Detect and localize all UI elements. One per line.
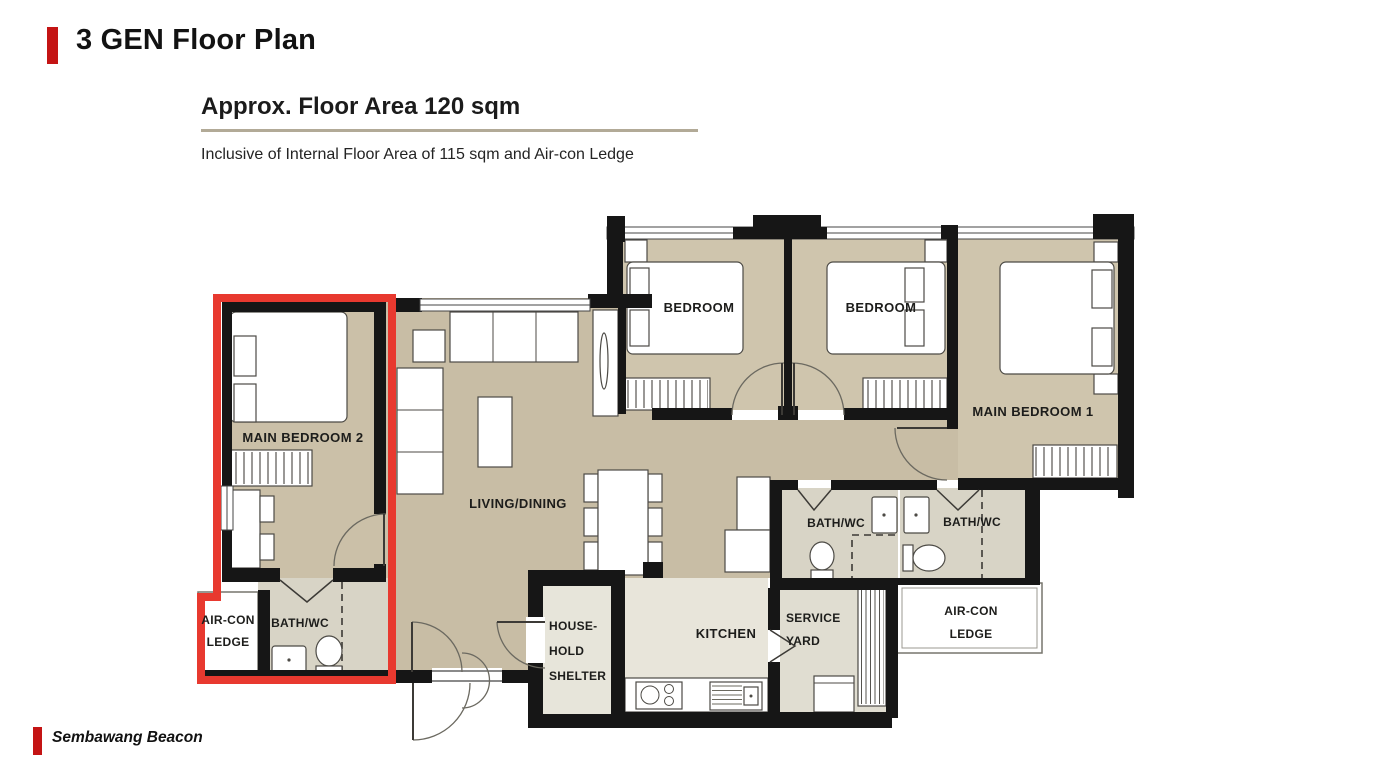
slide: 3 GEN Floor Plan Approx. Floor Area 120 … xyxy=(0,0,1376,774)
label-service-yard-1: SERVICE xyxy=(786,611,841,625)
label-aircon-left-2: LEDGE xyxy=(207,635,250,649)
entrance-threshold xyxy=(432,668,502,684)
coffee-table xyxy=(478,397,512,467)
tv-console xyxy=(593,310,618,416)
floor-area-heading: Approx. Floor Area 120 sqm xyxy=(201,93,520,121)
label-aircon-right-1: AIR-CON xyxy=(944,604,997,618)
windows xyxy=(607,227,1134,239)
sideboard xyxy=(397,368,443,494)
kitchen-sink xyxy=(710,682,762,710)
label-aircon-left-1: AIR-CON xyxy=(201,613,254,627)
label-aircon-right-2: LEDGE xyxy=(950,627,993,641)
label-main-bedroom-2: MAIN BEDROOM 2 xyxy=(242,430,363,445)
heading-divider xyxy=(201,129,698,132)
label-household-shelter-3: SHELTER xyxy=(549,669,606,683)
wardrobe-bedroom-right xyxy=(863,378,947,410)
label-household-shelter-2: HOLD xyxy=(549,644,584,658)
label-kitchen: KITCHEN xyxy=(696,626,757,641)
wardrobe-main-bedroom-1 xyxy=(1033,445,1117,478)
label-household-shelter-1: HOUSE- xyxy=(549,619,597,633)
floor-plan: BEDROOM BEDROOM MAIN BEDROOM 1 MAIN BEDR… xyxy=(190,205,1150,750)
stove xyxy=(636,682,682,709)
living-window xyxy=(420,299,590,311)
project-name: Sembawang Beacon xyxy=(52,729,203,747)
mb2-window xyxy=(221,486,233,530)
label-bath-mb2: BATH/WC xyxy=(271,616,329,630)
dining-table xyxy=(584,470,662,575)
label-living-dining: LIVING/DINING xyxy=(469,496,567,511)
kitchen-counter xyxy=(625,678,768,712)
floor-area-subheading: Inclusive of Internal Floor Area of 115 … xyxy=(201,146,634,164)
wardrobe-main-bedroom-2 xyxy=(228,450,312,486)
label-main-bedroom-1: MAIN BEDROOM 1 xyxy=(972,404,1093,419)
washing-machine xyxy=(814,676,854,712)
label-bedroom-left: BEDROOM xyxy=(664,300,735,315)
label-bath-common: BATH/WC xyxy=(807,516,865,530)
label-bedroom-right: BEDROOM xyxy=(846,300,917,315)
drying-rack xyxy=(858,584,886,706)
bed-main-bedroom-1 xyxy=(1000,242,1118,394)
aircon-ledge-right-area xyxy=(897,583,1042,653)
bed-main-bedroom-2 xyxy=(230,308,347,422)
label-service-yard-2: YARD xyxy=(786,634,820,648)
title-accent-bar xyxy=(47,27,58,64)
wardrobe-bedroom-left xyxy=(625,378,710,410)
aircon-ledge-left-area xyxy=(198,592,258,672)
footer-accent-bar xyxy=(33,727,42,755)
page-title: 3 GEN Floor Plan xyxy=(76,24,316,57)
label-bath-mb1: BATH/WC xyxy=(943,515,1001,529)
